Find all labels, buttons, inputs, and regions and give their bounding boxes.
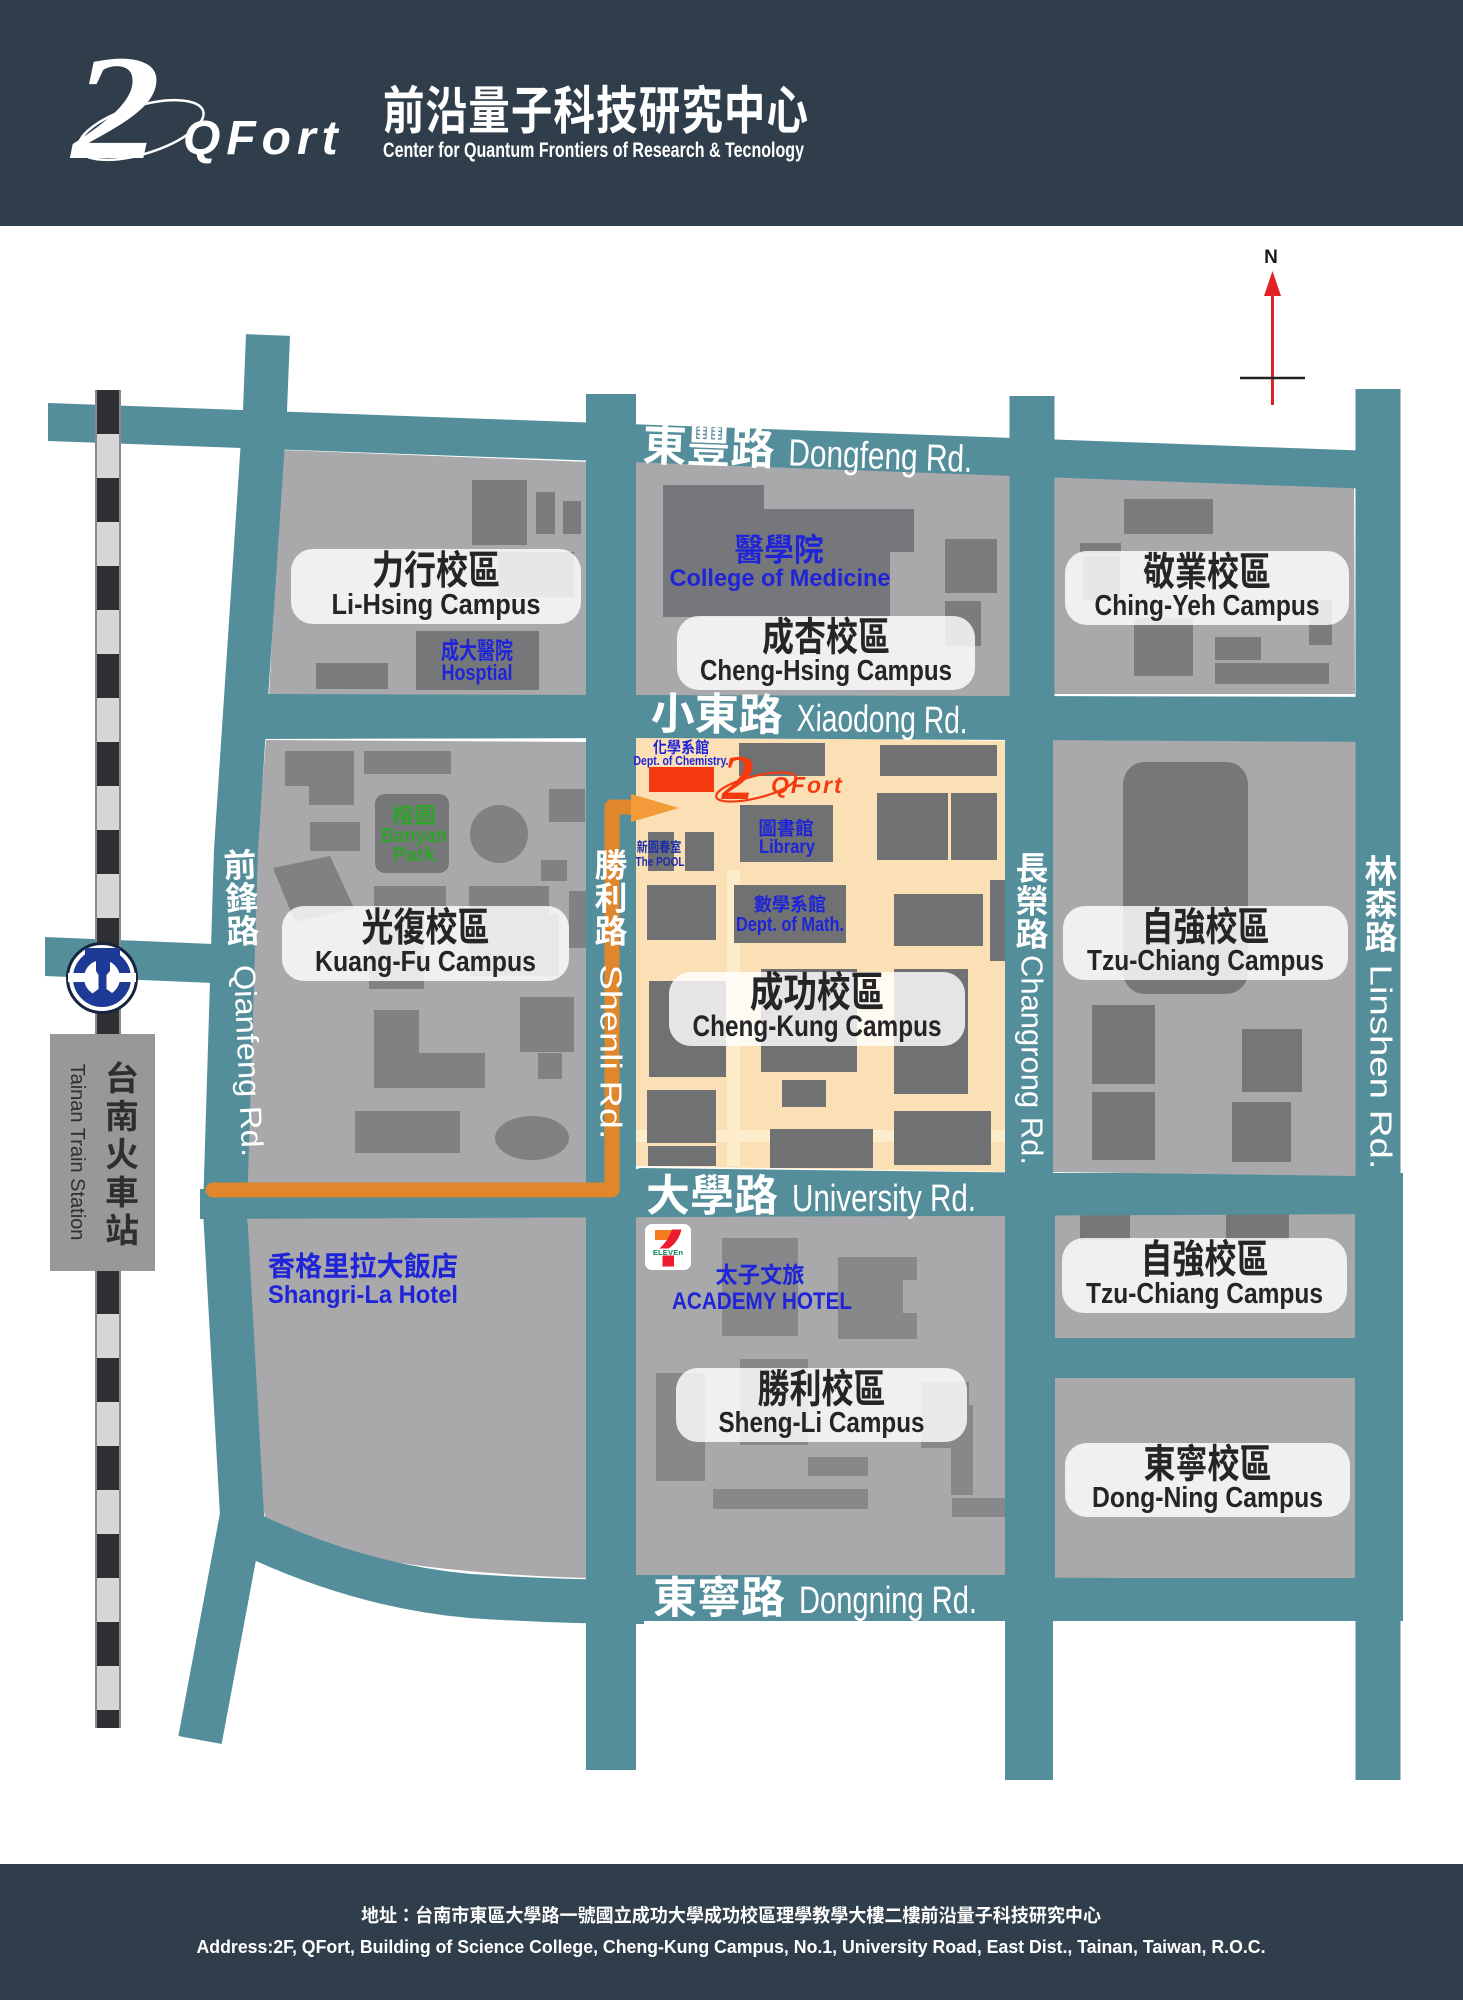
- svg-text:Shenli Rd.: Shenli Rd.: [593, 965, 626, 1140]
- svg-text:Tainan Train Station: Tainan Train Station: [66, 1064, 88, 1241]
- svg-text:QFort: QFort: [183, 112, 344, 165]
- svg-text:Dongning Rd.: Dongning Rd.: [799, 1580, 977, 1622]
- svg-text:ACADEMY HOTEL: ACADEMY HOTEL: [672, 1288, 852, 1315]
- svg-text:Changrong Rd.: Changrong Rd.: [1014, 955, 1047, 1165]
- svg-text:Xiaodong Rd.: Xiaodong Rd.: [796, 698, 968, 742]
- svg-text:Dong-Ning Campus: Dong-Ning Campus: [1092, 1482, 1323, 1514]
- svg-text:N: N: [1264, 247, 1278, 268]
- svg-text:Tzu-Chiang Campus: Tzu-Chiang Campus: [1087, 945, 1324, 977]
- svg-text:Address:2F, QFort, Building of: Address:2F, QFort, Building of Science C…: [197, 1937, 1266, 1957]
- svg-text:The POOL: The POOL: [636, 854, 685, 869]
- svg-text:Ching-Yeh Campus: Ching-Yeh Campus: [1095, 590, 1320, 622]
- svg-text:Sheng-Li Campus: Sheng-Li Campus: [719, 1407, 925, 1439]
- svg-text:Hosptial: Hosptial: [442, 660, 513, 685]
- svg-text:Dept. of Math.: Dept. of Math.: [736, 914, 844, 936]
- svg-text:Park: Park: [393, 844, 436, 866]
- svg-text:Shangri-La Hotel: Shangri-La Hotel: [268, 1281, 458, 1309]
- svg-text:Li-Hsing Campus: Li-Hsing Campus: [332, 589, 541, 621]
- svg-text:Cheng-Kung Campus: Cheng-Kung Campus: [693, 1010, 942, 1043]
- svg-text:Tzu-Chiang Campus: Tzu-Chiang Campus: [1086, 1278, 1323, 1310]
- svg-text:College of Medicine: College of Medicine: [670, 565, 891, 592]
- svg-text:Cheng-Hsing Campus: Cheng-Hsing Campus: [700, 655, 952, 687]
- svg-text:Center for Quantum Frontiers o: Center for Quantum Frontiers of Research…: [383, 139, 804, 162]
- svg-text:University Rd.: University Rd.: [792, 1178, 976, 1220]
- svg-text:QFort: QFort: [771, 772, 844, 798]
- svg-text:Dept. of Chemistry.: Dept. of Chemistry.: [634, 754, 729, 768]
- svg-text:2: 2: [70, 25, 161, 190]
- svg-text:ELEVEn: ELEVEn: [653, 1248, 684, 1257]
- svg-text:Kuang-Fu Campus: Kuang-Fu Campus: [315, 946, 536, 978]
- svg-text:Linshen Rd.: Linshen Rd.: [1363, 965, 1396, 1170]
- svg-text:Library: Library: [759, 837, 815, 858]
- svg-text:Dongfeng Rd.: Dongfeng Rd.: [788, 432, 973, 481]
